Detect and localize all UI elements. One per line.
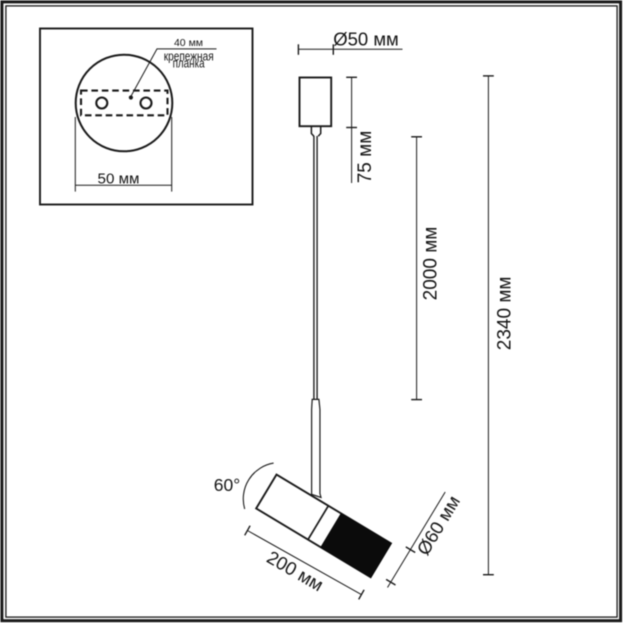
svg-text:Ø50 мм: Ø50 мм (333, 29, 399, 50)
svg-text:планка: планка (173, 56, 205, 70)
svg-text:60°: 60° (214, 475, 240, 495)
svg-text:2340 мм: 2340 мм (495, 277, 516, 351)
svg-text:2000 мм: 2000 мм (420, 227, 441, 301)
svg-text:50 мм: 50 мм (98, 171, 140, 188)
svg-text:40 мм: 40 мм (174, 37, 203, 49)
svg-text:75 мм: 75 мм (355, 131, 376, 184)
